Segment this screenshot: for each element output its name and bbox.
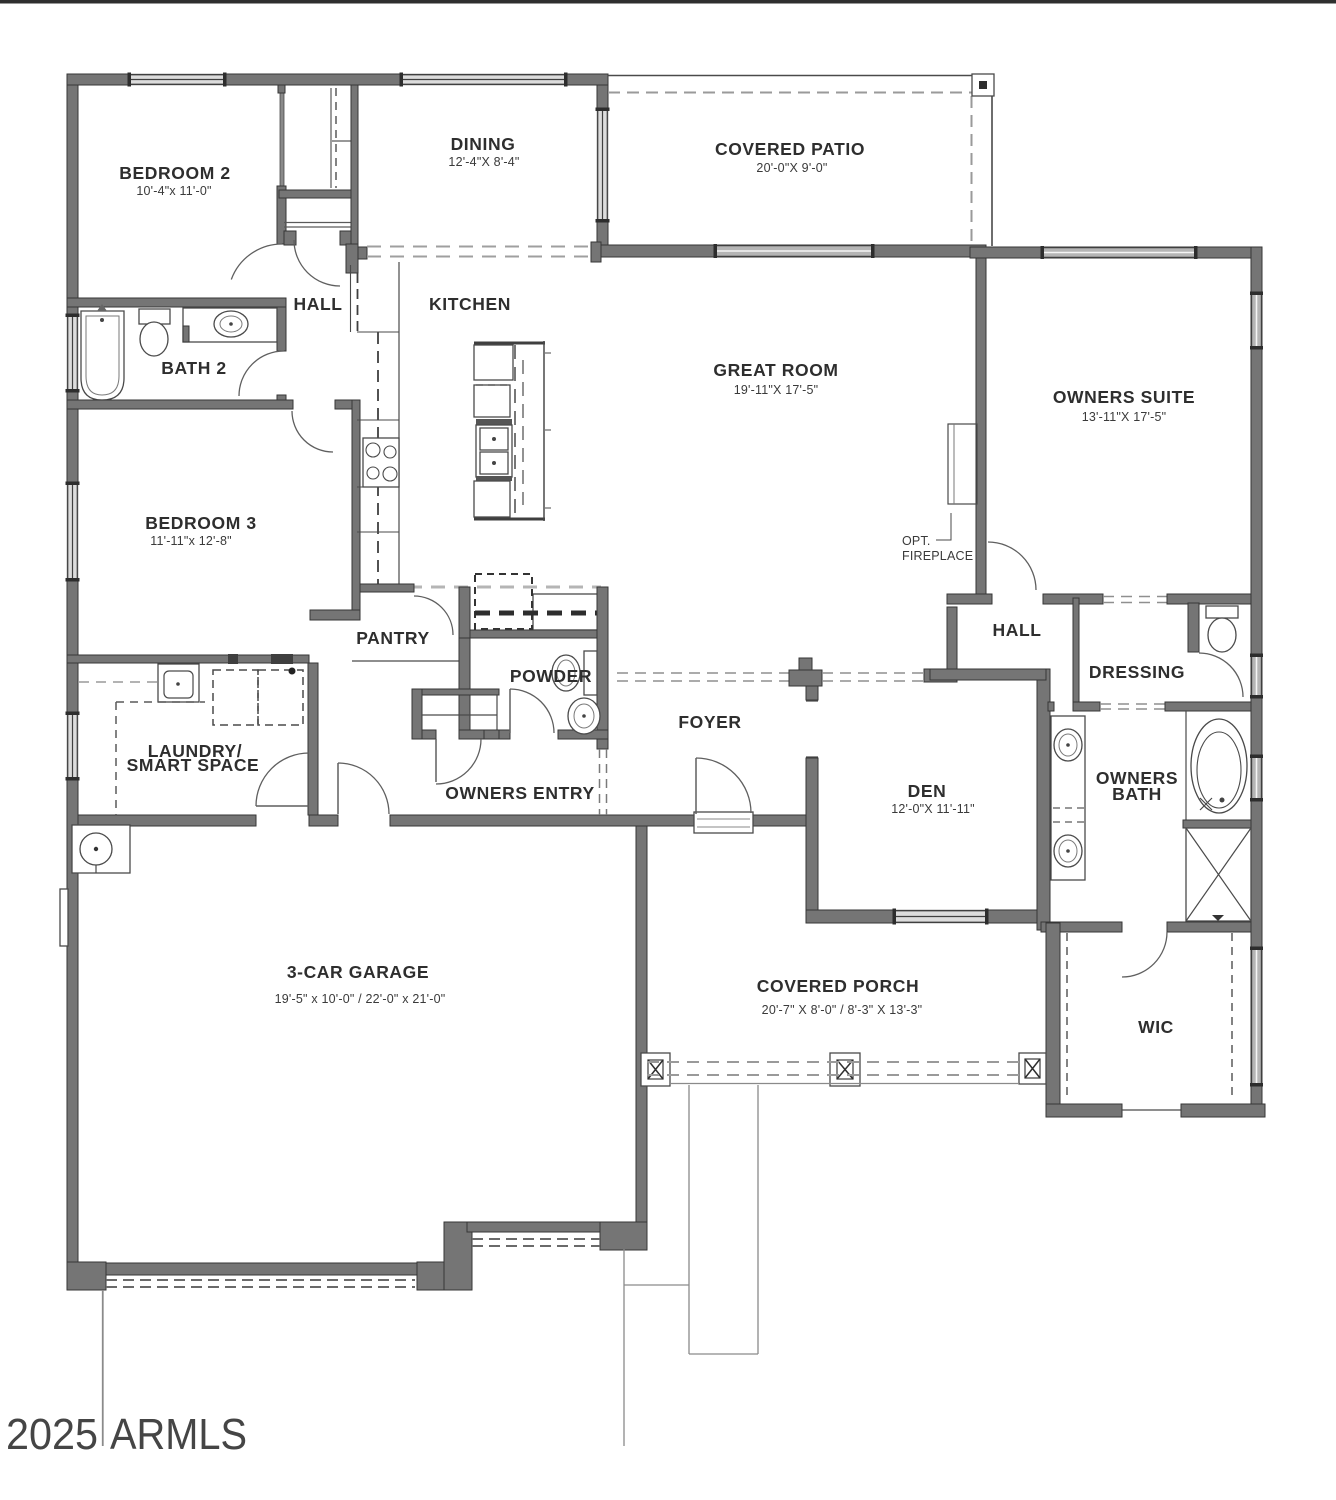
- svg-text:DRESSING: DRESSING: [1089, 662, 1185, 682]
- svg-text:KITCHEN: KITCHEN: [429, 294, 511, 314]
- svg-text:BATH 2: BATH 2: [161, 358, 227, 378]
- svg-text:ARMLS: ARMLS: [110, 1410, 247, 1459]
- svg-text:DEN: DEN: [908, 781, 947, 801]
- svg-text:HALL: HALL: [992, 620, 1041, 640]
- svg-text:OPT.: OPT.: [902, 534, 931, 548]
- svg-text:11'-11"x 12'-8": 11'-11"x 12'-8": [150, 534, 232, 548]
- svg-text:20'-7" X 8'-0" / 8'-3" X 13'-3: 20'-7" X 8'-0" / 8'-3" X 13'-3": [762, 1003, 923, 1017]
- svg-text:12'-0"X 11'-11": 12'-0"X 11'-11": [891, 802, 975, 816]
- svg-text:BEDROOM 3: BEDROOM 3: [145, 513, 256, 533]
- svg-text:2025: 2025: [6, 1410, 98, 1459]
- svg-text:FIREPLACE: FIREPLACE: [902, 549, 973, 563]
- svg-text:10'-4"x 11'-0": 10'-4"x 11'-0": [136, 184, 211, 198]
- svg-text:HALL: HALL: [293, 294, 342, 314]
- svg-text:OWNERS ENTRY: OWNERS ENTRY: [445, 783, 594, 803]
- svg-text:BATH: BATH: [1112, 784, 1162, 804]
- svg-text:19'-11"X 17'-5": 19'-11"X 17'-5": [734, 383, 819, 397]
- svg-text:BEDROOM 2: BEDROOM 2: [119, 163, 230, 183]
- svg-text:DINING: DINING: [451, 134, 516, 154]
- svg-text:COVERED PATIO: COVERED PATIO: [715, 139, 865, 159]
- svg-text:PANTRY: PANTRY: [356, 628, 430, 648]
- svg-text:OWNERS SUITE: OWNERS SUITE: [1053, 387, 1195, 407]
- svg-text:20'-0"X 9'-0": 20'-0"X 9'-0": [756, 161, 827, 175]
- svg-text:FOYER: FOYER: [678, 712, 741, 732]
- svg-text:3-CAR GARAGE: 3-CAR GARAGE: [287, 962, 429, 982]
- svg-text:12'-4"X 8'-4": 12'-4"X 8'-4": [448, 155, 519, 169]
- svg-text:SMART SPACE: SMART SPACE: [127, 755, 260, 775]
- svg-text:WIC: WIC: [1138, 1017, 1174, 1037]
- svg-text:19'-5" x 10'-0" / 22'-0" x 21': 19'-5" x 10'-0" / 22'-0" x 21'-0": [275, 992, 446, 1006]
- svg-text:GREAT ROOM: GREAT ROOM: [713, 360, 838, 380]
- svg-text:POWDER: POWDER: [510, 666, 592, 686]
- svg-text:13'-11"X 17'-5": 13'-11"X 17'-5": [1082, 410, 1167, 424]
- svg-text:COVERED PORCH: COVERED PORCH: [757, 976, 919, 996]
